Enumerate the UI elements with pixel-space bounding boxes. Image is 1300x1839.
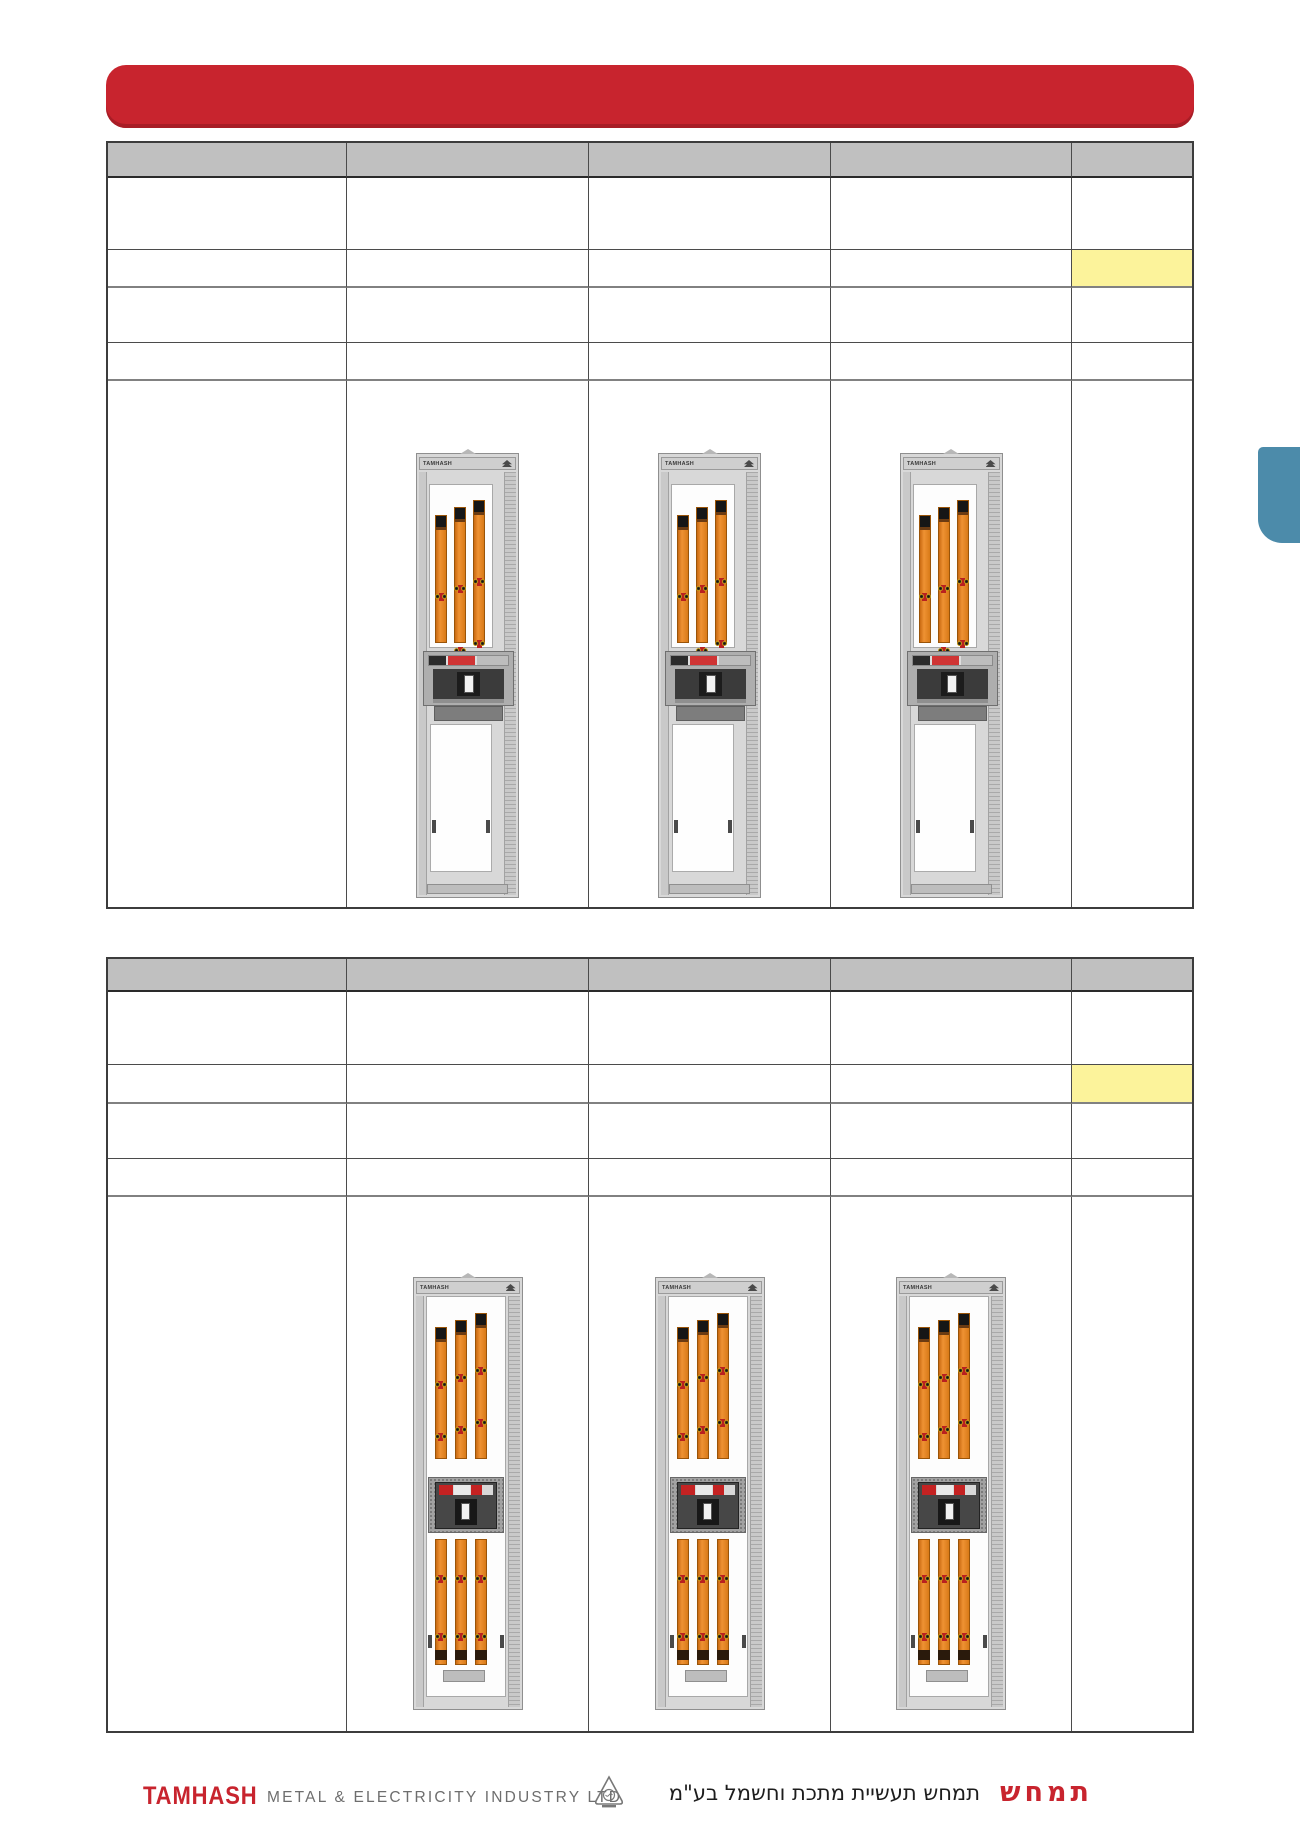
product-table-lower: TAMHASH (106, 957, 1194, 1733)
table-cell (589, 1159, 831, 1197)
breaker-label (922, 1485, 976, 1495)
table-cell (108, 1197, 347, 1731)
table-cell (347, 250, 589, 288)
busbar (919, 515, 931, 643)
lower-blank-panel (672, 724, 734, 872)
table-cell (1072, 1197, 1192, 1731)
distribution-cabinet-image: TAMHASH (416, 453, 519, 898)
table-cell (831, 250, 1072, 288)
breaker-toggle (703, 1503, 712, 1520)
circuit-breaker-unit (435, 1482, 497, 1529)
cabinet-logo-icon (502, 460, 512, 467)
circuit-breaker-unit (918, 1482, 980, 1529)
product-image-cell: TAMHASH (831, 1197, 1072, 1731)
cabinet-base (685, 1670, 727, 1682)
busbar (957, 500, 969, 643)
product-image-cell: TAMHASH (831, 381, 1072, 907)
cabinet-right-rail (508, 1296, 520, 1707)
table-cell (108, 381, 347, 907)
cabinet-brand-strip: TAMHASH (903, 457, 1000, 470)
cabinet-brand-strip: TAMHASH (661, 457, 758, 470)
cabinet-logo-icon (986, 460, 996, 467)
busbar (677, 515, 689, 643)
table-cell (589, 178, 831, 250)
breaker-body (917, 669, 988, 699)
busbar (938, 1320, 950, 1459)
table-cell (347, 343, 589, 381)
busbar (435, 1327, 447, 1459)
busbar (958, 1539, 970, 1665)
standards-institute-icon (594, 1775, 624, 1814)
cabinet-top-peak (460, 449, 476, 454)
busbar (473, 500, 485, 643)
busbar (938, 1539, 950, 1665)
busbar (918, 1539, 930, 1665)
table-header-cell (108, 143, 347, 178)
table-cell (831, 1159, 1072, 1197)
cabinet-brand-label: TAMHASH (665, 460, 694, 466)
section-side-tab (1258, 447, 1300, 543)
distribution-cabinet-image: TAMHASH (896, 1277, 1006, 1710)
cabinet-logo-icon (506, 1284, 516, 1291)
table-cell (831, 992, 1072, 1065)
busbar (697, 1320, 709, 1459)
busbar (938, 507, 950, 643)
busbar (715, 500, 727, 643)
busbar-window (668, 1296, 748, 1697)
busbar (454, 507, 466, 643)
cabinet-brand-label: TAMHASH (907, 460, 936, 466)
breaker-label (912, 655, 993, 666)
breaker-toggle (461, 1503, 470, 1520)
cabinet-base (427, 884, 508, 894)
busbar (475, 1313, 487, 1459)
busbar (696, 507, 708, 643)
breaker-flange (434, 706, 503, 721)
table-cell (1072, 1104, 1192, 1159)
lower-busbar-group (427, 1539, 505, 1665)
busbar-window (429, 484, 493, 648)
table-header-cell (589, 959, 831, 992)
company-name-hebrew: תמחש תעשיית מתכת וחשמל בע"מ (650, 1781, 980, 1805)
table-header-cell (108, 959, 347, 992)
busbar (697, 1539, 709, 1665)
table-cell (1072, 992, 1192, 1065)
busbar (435, 1539, 447, 1665)
table-cell (589, 343, 831, 381)
cabinet-base (911, 884, 992, 894)
cabinet-right-rail (991, 1296, 1003, 1707)
breaker-flange (676, 706, 745, 721)
table-header-cell (1072, 959, 1192, 992)
cabinet-brand-label: TAMHASH (903, 1284, 932, 1290)
upper-busbar-group (910, 1313, 988, 1459)
cabinet-left-rail (899, 1296, 907, 1707)
table-cell (589, 250, 831, 288)
breaker-mounting-plate (670, 1477, 746, 1533)
company-name-english: METAL & ELECTRICITY INDUSTRY LTD (267, 1789, 622, 1807)
busbar (475, 1539, 487, 1665)
breaker-label (439, 1485, 493, 1495)
breaker-toggle (464, 675, 474, 693)
table-header-cell (831, 959, 1072, 992)
product-table-upper: TAMHASH TAMHASH (106, 141, 1194, 909)
breaker-label (428, 655, 509, 666)
breaker-mounting-plate (428, 1477, 504, 1533)
busbar (958, 1313, 970, 1459)
circuit-breaker-unit (423, 651, 514, 706)
table-cell (1072, 381, 1192, 907)
busbar-window (426, 1296, 506, 1697)
table-cell (589, 1104, 831, 1159)
circuit-breaker-unit (907, 651, 998, 706)
table-cell (831, 343, 1072, 381)
cabinet-top-peak (943, 449, 959, 454)
table-cell (589, 1065, 831, 1104)
lower-blank-panel (430, 724, 492, 872)
cabinet-brand-strip: TAMHASH (899, 1281, 1003, 1294)
cabinet-base (669, 884, 750, 894)
table-cell (831, 1065, 1072, 1104)
table-header-cell (1072, 143, 1192, 178)
distribution-cabinet-image: TAMHASH (655, 1277, 765, 1710)
cabinet-base (443, 1670, 485, 1682)
table-header-cell (347, 143, 589, 178)
highlighted-cell (1072, 250, 1192, 288)
busbar (677, 1539, 689, 1665)
cabinet-right-rail (750, 1296, 762, 1707)
table-cell (347, 288, 589, 343)
upper-busbar-group (669, 1313, 747, 1459)
cabinet-left-rail (658, 1296, 666, 1707)
product-image-cell: TAMHASH (347, 381, 589, 907)
cabinet-logo-icon (748, 1284, 758, 1291)
cabinet-logo-icon (989, 1284, 999, 1291)
breaker-body (433, 669, 504, 699)
upper-busbar-group (427, 1313, 505, 1459)
table-cell (1072, 178, 1192, 250)
table-cell (347, 1065, 589, 1104)
table-cell (1072, 1159, 1192, 1197)
cabinet-top-peak (702, 1273, 718, 1278)
circuit-breaker-unit (677, 1482, 739, 1529)
busbar (455, 1320, 467, 1459)
tamhash-hebrew-logo: תמחש (1000, 1777, 1110, 1808)
distribution-cabinet-image: TAMHASH (658, 453, 761, 898)
breaker-toggle (706, 675, 716, 693)
table-cell (108, 250, 347, 288)
table-cell (108, 992, 347, 1065)
cabinet-logo-icon (744, 460, 754, 467)
busbar (435, 515, 447, 643)
cabinet-brand-label: TAMHASH (420, 1284, 449, 1290)
table-cell (108, 1159, 347, 1197)
table-cell (831, 288, 1072, 343)
table-header-cell (347, 959, 589, 992)
table-cell (589, 288, 831, 343)
busbar (717, 1313, 729, 1459)
breaker-label (681, 1485, 735, 1495)
table-cell (108, 343, 347, 381)
product-image-cell: TAMHASH (589, 381, 831, 907)
table-cell (108, 1065, 347, 1104)
section-title-banner (106, 65, 1194, 128)
cabinet-left-rail (416, 1296, 424, 1707)
breaker-flange (918, 706, 987, 721)
breaker-mounting-plate (911, 1477, 987, 1533)
breaker-label (670, 655, 751, 666)
product-image-cell: TAMHASH (347, 1197, 589, 1731)
breaker-toggle (945, 1503, 954, 1520)
cabinet-brand-label: TAMHASH (423, 460, 452, 466)
table-cell (831, 1104, 1072, 1159)
breaker-body (675, 669, 746, 699)
cabinet-top-peak (943, 1273, 959, 1278)
table-cell (347, 178, 589, 250)
table-cell (347, 1159, 589, 1197)
table-cell (108, 288, 347, 343)
busbar (677, 1327, 689, 1459)
table-cell (1072, 288, 1192, 343)
breaker-toggle (947, 675, 957, 693)
lower-blank-panel (914, 724, 976, 872)
busbar (717, 1539, 729, 1665)
table-cell (347, 1104, 589, 1159)
cabinet-top-peak (460, 1273, 476, 1278)
busbar-window (671, 484, 735, 648)
busbar (918, 1327, 930, 1459)
busbar-window (913, 484, 977, 648)
catalog-page: TAMHASH TAMHASH (0, 0, 1300, 1839)
distribution-cabinet-image: TAMHASH (900, 453, 1003, 898)
lower-busbar-group (910, 1539, 988, 1665)
table-header-cell (831, 143, 1072, 178)
circuit-breaker-unit (665, 651, 756, 706)
table-cell (347, 992, 589, 1065)
distribution-cabinet-image: TAMHASH (413, 1277, 523, 1710)
table-header-cell (589, 143, 831, 178)
cabinet-brand-strip: TAMHASH (416, 1281, 520, 1294)
highlighted-cell (1072, 1065, 1192, 1104)
cabinet-brand-strip: TAMHASH (419, 457, 516, 470)
cabinet-brand-label: TAMHASH (662, 1284, 691, 1290)
table-cell (1072, 343, 1192, 381)
cabinet-top-peak (702, 449, 718, 454)
cabinet-base (926, 1670, 968, 1682)
table-cell (831, 178, 1072, 250)
table-cell (108, 178, 347, 250)
product-image-cell: TAMHASH (589, 1197, 831, 1731)
table-cell (589, 992, 831, 1065)
busbar (455, 1539, 467, 1665)
tamhash-logo: TAMHASH (143, 1782, 244, 1811)
table-cell (108, 1104, 347, 1159)
busbar-window (909, 1296, 989, 1697)
cabinet-brand-strip: TAMHASH (658, 1281, 762, 1294)
lower-busbar-group (669, 1539, 747, 1665)
